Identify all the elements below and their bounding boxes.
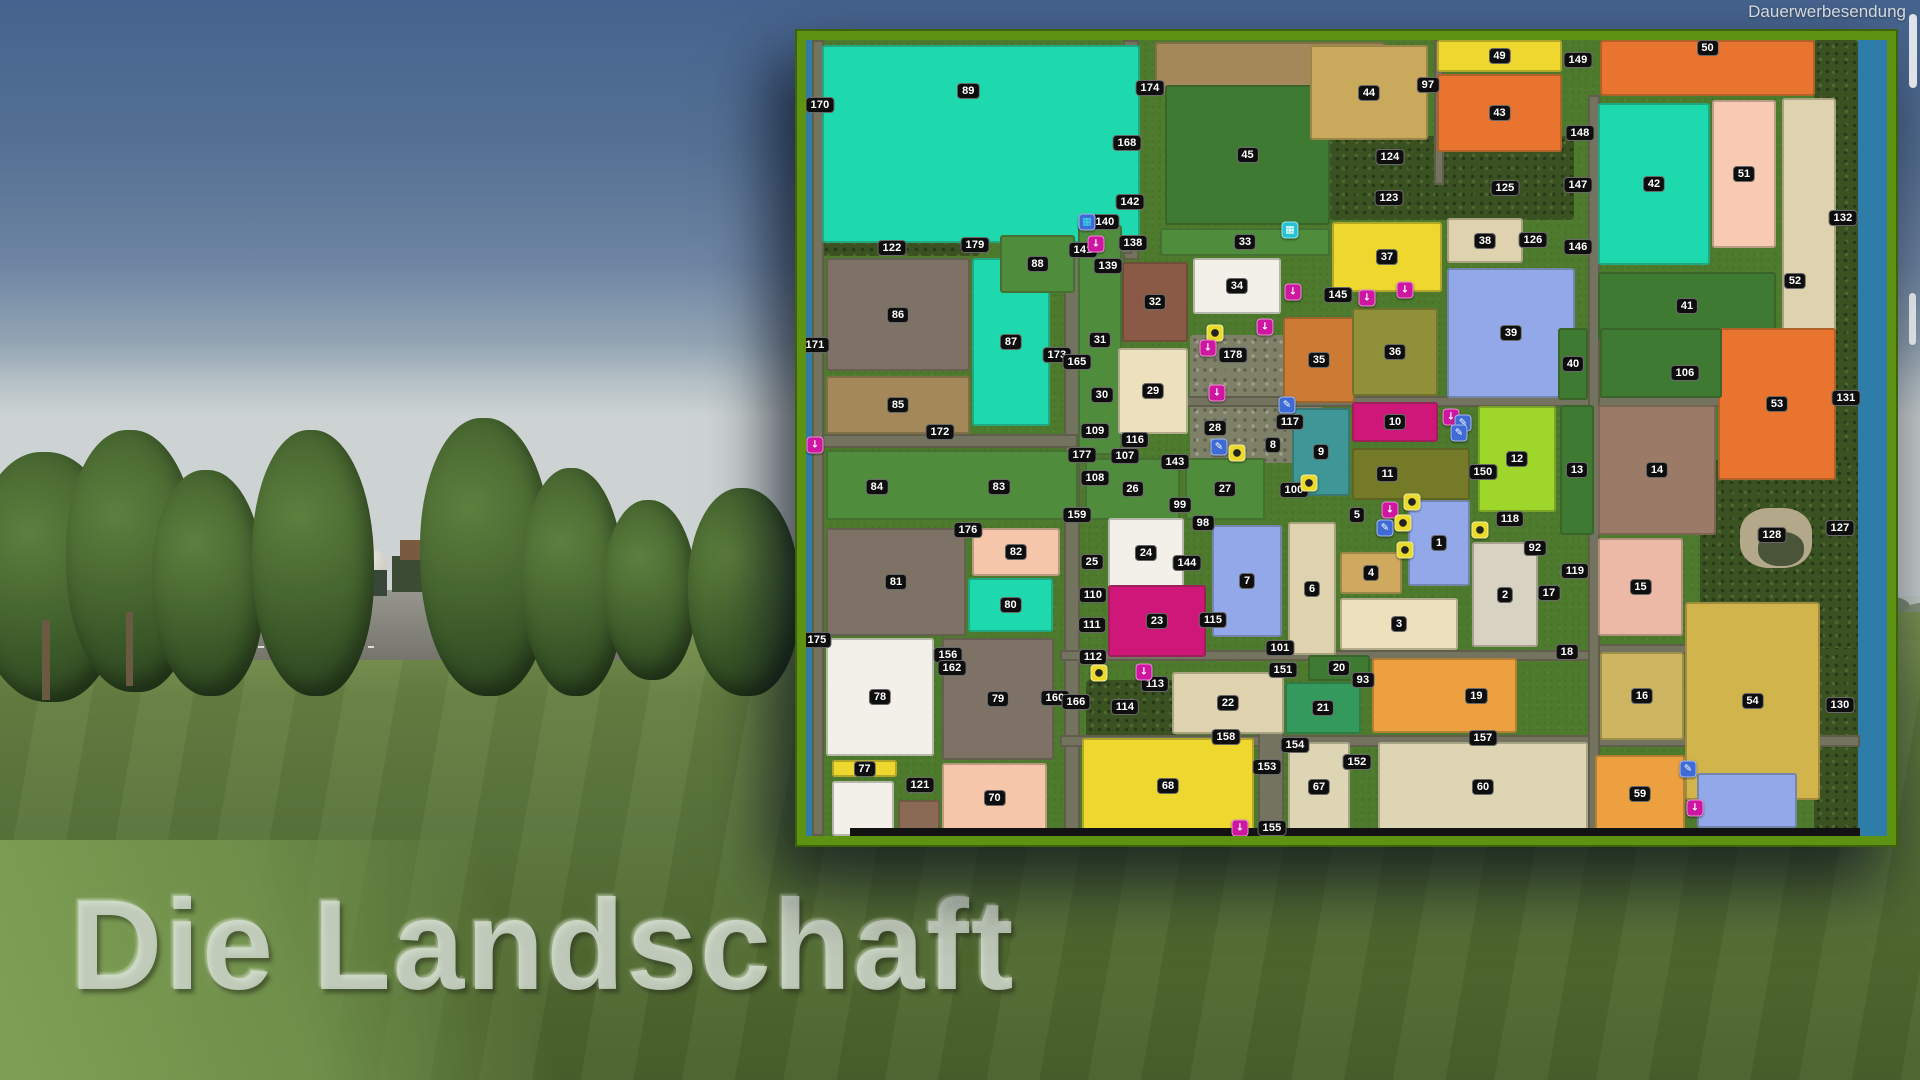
field-number-label: 36	[1384, 344, 1406, 360]
field-number-label: 82	[1005, 544, 1027, 560]
field-number-label: 87	[1000, 334, 1022, 350]
map-area-label-121: 121	[906, 777, 935, 793]
map-area-label-84: 84	[866, 479, 889, 495]
field-number-label: 42	[1643, 176, 1665, 192]
map-area-label-179: 179	[961, 237, 990, 253]
field-number-label: 89	[957, 83, 979, 99]
field-number-label: 32	[1144, 294, 1166, 310]
map-area-label-107: 107	[1111, 448, 1140, 464]
map-icon-blue: ✎	[1377, 520, 1394, 537]
map-area-label-111: 111	[1078, 617, 1106, 633]
map-area-label-119: 119	[1561, 563, 1589, 579]
tree-trunk	[126, 612, 133, 686]
map-icon-cyan: ▦	[1282, 222, 1299, 239]
tree	[152, 470, 264, 696]
field-number-label: 11	[1377, 466, 1399, 482]
map-terrain-blackbar	[850, 828, 1860, 836]
field-number-label: 19	[1465, 688, 1487, 704]
map-area-label-176: 176	[954, 522, 983, 538]
field-parcel-51: 51	[1712, 100, 1776, 248]
map-area-label-132: 132	[1829, 210, 1858, 226]
field-parcel-86: 86	[826, 258, 970, 371]
map-icon-blue: ✎	[1451, 425, 1468, 442]
map-icon-yellow: ●	[1395, 515, 1412, 532]
scrollbar[interactable]	[1906, 0, 1920, 1080]
field-parcel-16: 16	[1600, 652, 1684, 740]
map-area-label-108: 108	[1081, 470, 1110, 486]
broadcast-watermark: Dauerwerbesendung	[1748, 2, 1906, 22]
map-area-label-177: 177	[1068, 447, 1097, 463]
map-area-label-126: 126	[1519, 232, 1548, 248]
map-area-label-170: 170	[806, 97, 834, 113]
map-icon-magenta: ↓	[1209, 385, 1226, 402]
field-parcel-15: 15	[1598, 538, 1683, 636]
scrollbar-top-segment[interactable]	[1909, 14, 1917, 88]
field-parcel-82: 82	[972, 528, 1060, 576]
map-icon-magenta: ↓	[1200, 340, 1217, 357]
map-area-label-155: 155	[1258, 820, 1287, 836]
field-number-label: 45	[1236, 147, 1258, 163]
field-number-label: 52	[1784, 273, 1806, 289]
field-parcel-37: 37	[1332, 222, 1442, 292]
field-number-label: 85	[887, 397, 909, 413]
field-parcel-27: 27	[1185, 458, 1265, 520]
field-number-label: 44	[1358, 85, 1380, 101]
map-area-label-99: 99	[1169, 497, 1192, 513]
map-area-label-97: 97	[1417, 77, 1440, 93]
field-number-label: 12	[1506, 451, 1528, 467]
field-number-label: 37	[1376, 249, 1398, 265]
map-terrain-river	[1858, 40, 1887, 836]
map-area-label-112: 112	[1079, 649, 1107, 665]
field-parcel-53: 53	[1718, 328, 1836, 480]
map-area-label-168: 168	[1113, 135, 1142, 151]
field-parcel	[1697, 773, 1797, 828]
map-area-label-18: 18	[1556, 644, 1579, 660]
field-parcel-40: 40	[1558, 328, 1588, 400]
field-parcel	[1600, 328, 1722, 398]
map-area-label-5: 5	[1349, 507, 1365, 523]
map-area-label-83: 83	[988, 479, 1011, 495]
field-number-label: 40	[1562, 356, 1584, 372]
field-parcel-80: 80	[968, 578, 1053, 632]
field-parcel-32: 32	[1122, 262, 1188, 342]
map-area-label-158: 158	[1212, 729, 1241, 745]
field-parcel-67: 67	[1288, 742, 1350, 832]
map-area-label-145: 145	[1324, 287, 1353, 303]
field-parcel-78: 78	[826, 638, 934, 756]
field-parcel-3: 3	[1340, 598, 1458, 650]
field-number-label: 13	[1566, 462, 1588, 478]
map-area-label-25: 25	[1081, 554, 1104, 570]
map-icon-yellow: ●	[1472, 522, 1489, 539]
field-map-overlay: 8945444943504251524133343231293536373839…	[797, 31, 1896, 845]
map-icon-magenta: ↓	[1257, 319, 1274, 336]
field-number-label: 79	[987, 691, 1009, 707]
field-parcel-24: 24	[1108, 518, 1184, 588]
map-area-label-122: 122	[878, 240, 907, 256]
field-parcel-21: 21	[1285, 682, 1361, 734]
field-number-label: 14	[1646, 462, 1668, 478]
map-area-label-124: 124	[1376, 149, 1405, 165]
map-icon-blue: ✎	[1680, 761, 1697, 778]
map-icon-yellow: ●	[1404, 494, 1421, 511]
map-area-label-162: 162	[938, 660, 967, 676]
field-number-label: 22	[1217, 695, 1239, 711]
map-area-label-123: 123	[1375, 190, 1404, 206]
field-number-label: 33	[1234, 234, 1256, 250]
field-number-label: 68	[1157, 778, 1179, 794]
field-parcel-49: 49	[1437, 40, 1562, 72]
map-icon-magenta: ↓	[1397, 282, 1414, 299]
map-icon-magenta: ↓	[1232, 820, 1249, 837]
field-parcel-19: 19	[1372, 658, 1517, 733]
map-icon-magenta: ↓	[1136, 664, 1153, 681]
field-number-label: 80	[999, 597, 1021, 613]
field-number-label: 1	[1431, 535, 1447, 551]
field-parcel-42: 42	[1598, 103, 1710, 265]
map-icon-yellow: ●	[1301, 475, 1318, 492]
tree-trunk	[42, 620, 50, 700]
map-area-label-154: 154	[1281, 737, 1310, 753]
field-number-label: 86	[887, 307, 909, 323]
map-area-label-118: 118	[1496, 511, 1524, 527]
map-area-label-157: 157	[1469, 730, 1498, 746]
map-area-label-165: 165	[1063, 354, 1092, 370]
map-area-label-128: 128	[1758, 527, 1787, 543]
map-area-label-144: 144	[1173, 555, 1202, 571]
map-area-label-143: 143	[1161, 454, 1190, 470]
field-number-label: 4	[1363, 565, 1379, 581]
map-area-label-131: 131	[1832, 390, 1861, 406]
map-area-label-153: 153	[1253, 759, 1282, 775]
map-area-label-106: 106	[1671, 365, 1700, 381]
field-number-label: 60	[1472, 779, 1494, 795]
map-area-label-142: 142	[1116, 194, 1145, 210]
map-area-label-159: 159	[1063, 507, 1092, 523]
map-area-label-101: 101	[1266, 640, 1295, 656]
field-number-label: 67	[1308, 779, 1330, 795]
scrollbar-thumb[interactable]	[1909, 293, 1916, 345]
field-number-label: 3	[1391, 616, 1407, 632]
field-number-label: 24	[1135, 545, 1157, 561]
field-parcel-77: 77	[832, 760, 897, 777]
field-number-label: 53	[1766, 396, 1788, 412]
map-icon-magenta: ↓	[807, 437, 824, 454]
map-area-label-117: 117	[1276, 414, 1304, 430]
field-number-label: 10	[1384, 414, 1406, 430]
map-icon-shop: ▦	[1079, 214, 1096, 231]
field-number-label: 29	[1142, 383, 1164, 399]
field-parcel-2: 2	[1472, 542, 1538, 647]
field-parcel-13: 13	[1560, 405, 1594, 535]
field-number-label: 88	[1026, 256, 1048, 272]
map-area-label-178: 178	[1219, 347, 1248, 363]
field-number-label: 54	[1741, 693, 1763, 709]
map-area-label-110: 110	[1079, 587, 1107, 603]
field-number-label: 38	[1474, 233, 1496, 249]
field-parcel-6: 6	[1288, 522, 1336, 655]
field-parcel-68: 68	[1082, 738, 1254, 833]
map-area-label-127: 127	[1826, 520, 1855, 536]
watermark-title: Die Landschaft	[70, 872, 1016, 1019]
field-number-label: 23	[1146, 613, 1168, 629]
field-parcel-12: 12	[1478, 406, 1556, 512]
map-area-label-150: 150	[1469, 464, 1498, 480]
map-icon-magenta: ↓	[1359, 290, 1376, 307]
field-map: 8945444943504251524133343231293536373839…	[806, 40, 1887, 836]
field-parcel-38: 38	[1447, 218, 1523, 263]
map-area-label-152: 152	[1343, 754, 1372, 770]
map-icon-blue: ✎	[1279, 397, 1296, 414]
map-icon-magenta: ↓	[1285, 284, 1302, 301]
tree	[604, 500, 696, 680]
map-area-label-166: 166	[1062, 694, 1091, 710]
field-parcel-59: 59	[1595, 755, 1685, 833]
map-area-label-8: 8	[1265, 437, 1281, 453]
field-number-label: 20	[1328, 660, 1350, 676]
map-area-label-115: 115	[1199, 612, 1227, 628]
field-parcel-35: 35	[1283, 317, 1355, 403]
field-parcel-81: 81	[826, 528, 966, 636]
map-icon-blue: ✎	[1211, 439, 1228, 456]
field-parcel-10: 10	[1352, 402, 1438, 442]
map-area-label-116: 116	[1121, 432, 1149, 448]
field-number-label: 9	[1313, 444, 1329, 460]
field-number-label: 59	[1629, 786, 1651, 802]
map-area-label-175: 175	[806, 632, 831, 648]
field-parcel-88: 88	[1000, 235, 1075, 293]
field-number-label: 27	[1214, 481, 1236, 497]
map-area-label-114: 114	[1111, 699, 1139, 715]
tree	[252, 430, 374, 696]
map-area-label-17: 17	[1538, 585, 1561, 601]
field-parcel	[826, 450, 1078, 520]
field-number-label: 34	[1226, 278, 1248, 294]
map-area-label-151: 151	[1269, 662, 1298, 678]
map-area-label-171: 171	[806, 337, 829, 353]
map-area-label-30: 30	[1091, 387, 1114, 403]
field-parcel-50: 50	[1600, 40, 1815, 96]
field-parcel-44: 44	[1310, 45, 1428, 140]
field-number-label: 21	[1312, 700, 1334, 716]
map-area-label-109: 109	[1081, 423, 1110, 439]
map-area-label-130: 130	[1826, 697, 1855, 713]
field-number-label: 77	[853, 761, 875, 777]
map-area-label-172: 172	[926, 424, 955, 440]
field-number-label: 41	[1676, 298, 1698, 314]
field-parcel-23: 23	[1108, 585, 1206, 657]
field-number-label: 6	[1304, 581, 1320, 597]
field-number-label: 7	[1239, 573, 1255, 589]
map-area-label-92: 92	[1524, 540, 1547, 556]
map-area-label-148: 148	[1566, 125, 1595, 141]
field-parcel-70: 70	[942, 763, 1047, 833]
field-number-label: 43	[1488, 105, 1510, 121]
field-parcel-14: 14	[1598, 405, 1716, 535]
field-number-label: 15	[1629, 579, 1651, 595]
field-number-label: 81	[885, 574, 907, 590]
field-parcel-29: 29	[1118, 348, 1188, 434]
map-icon-yellow: ●	[1229, 445, 1246, 462]
field-parcel-39: 39	[1447, 268, 1575, 398]
map-area-label-139: 139	[1094, 258, 1123, 274]
field-number-label: 39	[1500, 325, 1522, 341]
field-number-label: 51	[1733, 166, 1755, 182]
map-area-label-146: 146	[1564, 239, 1593, 255]
field-number-label: 35	[1308, 352, 1330, 368]
map-icon-magenta: ↓	[1088, 236, 1105, 253]
field-parcel-33: 33	[1160, 228, 1330, 256]
field-number-label: 16	[1631, 688, 1653, 704]
map-icon-magenta: ↓	[1687, 800, 1704, 817]
field-parcel-1: 1	[1408, 500, 1470, 586]
field-number-label: 26	[1121, 481, 1143, 497]
tree	[688, 488, 800, 696]
map-area-label-93: 93	[1352, 672, 1375, 688]
field-parcel-45: 45	[1165, 85, 1330, 225]
map-area-label-174: 174	[1136, 80, 1165, 96]
field-number-label: 2	[1497, 587, 1513, 603]
field-parcel-11: 11	[1352, 448, 1470, 500]
map-area-label-149: 149	[1564, 52, 1593, 68]
screenshot-stage: Die Landschaft 8945444943504251524133343…	[0, 0, 1920, 1080]
field-parcel-36: 36	[1352, 308, 1438, 396]
field-number-label: 70	[983, 790, 1005, 806]
field-number-label: 31	[1089, 332, 1111, 348]
field-parcel-34: 34	[1193, 258, 1281, 314]
field-parcel-22: 22	[1172, 672, 1284, 734]
map-icon-yellow: ●	[1091, 665, 1108, 682]
field-parcel-4: 4	[1340, 552, 1402, 594]
field-parcel-60: 60	[1378, 742, 1588, 832]
field-number-label: 78	[869, 689, 891, 705]
field-number-label: 50	[1696, 40, 1718, 56]
map-area-label-138: 138	[1119, 235, 1148, 251]
field-number-label: 49	[1488, 48, 1510, 64]
map-area-label-28: 28	[1204, 420, 1227, 436]
field-parcel-43: 43	[1437, 74, 1562, 152]
field-parcel-54: 54	[1685, 602, 1820, 800]
map-area-label-125: 125	[1491, 180, 1520, 196]
map-area-label-98: 98	[1192, 515, 1215, 531]
map-area-label-147: 147	[1564, 177, 1593, 193]
map-icon-yellow: ●	[1397, 542, 1414, 559]
